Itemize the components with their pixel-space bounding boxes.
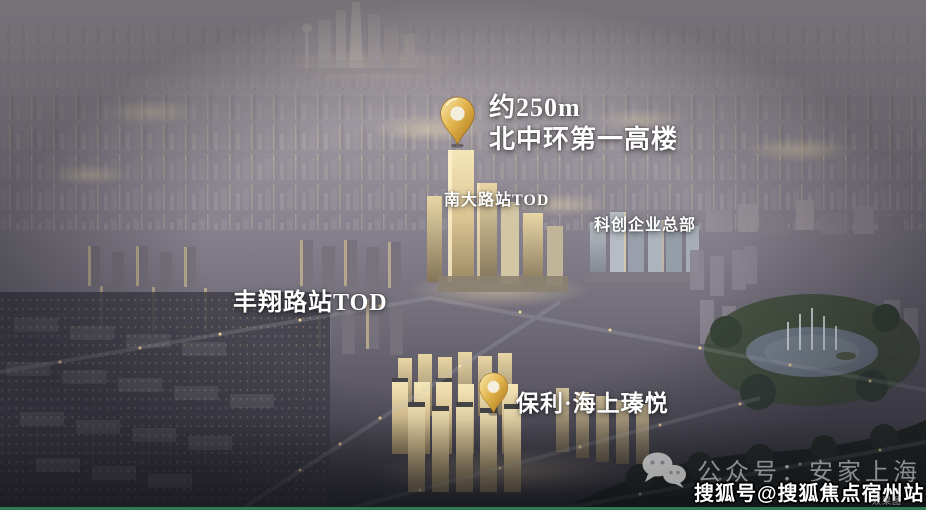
project-name-label: 保利·海上瑧悦 (516, 384, 669, 418)
nanda-road-tod-label: 南大路站TOD (444, 186, 549, 210)
gold-map-pin-icon-project (478, 372, 509, 416)
wechat-icon (641, 451, 687, 488)
tower-height-line2: 北中环第一高楼 (489, 124, 678, 156)
aerial-city-render: 约250m 北中环第一高楼 南大路站TOD 科创企业总部 丰翔路站TOD 保利·… (0, 0, 926, 510)
cityscape-art (0, 0, 926, 510)
gold-map-pin-icon-tower (439, 96, 476, 148)
tech-hq-label: 科创企业总部 (594, 211, 696, 235)
fengxiang-road-tod-label: 丰翔路站TOD (233, 282, 388, 317)
render-disclaimer-label: 效果图 (872, 494, 902, 507)
tower-height-label: 约250m 北中环第一高楼 (489, 92, 678, 156)
tower-height-line1: 约250m (489, 92, 678, 124)
